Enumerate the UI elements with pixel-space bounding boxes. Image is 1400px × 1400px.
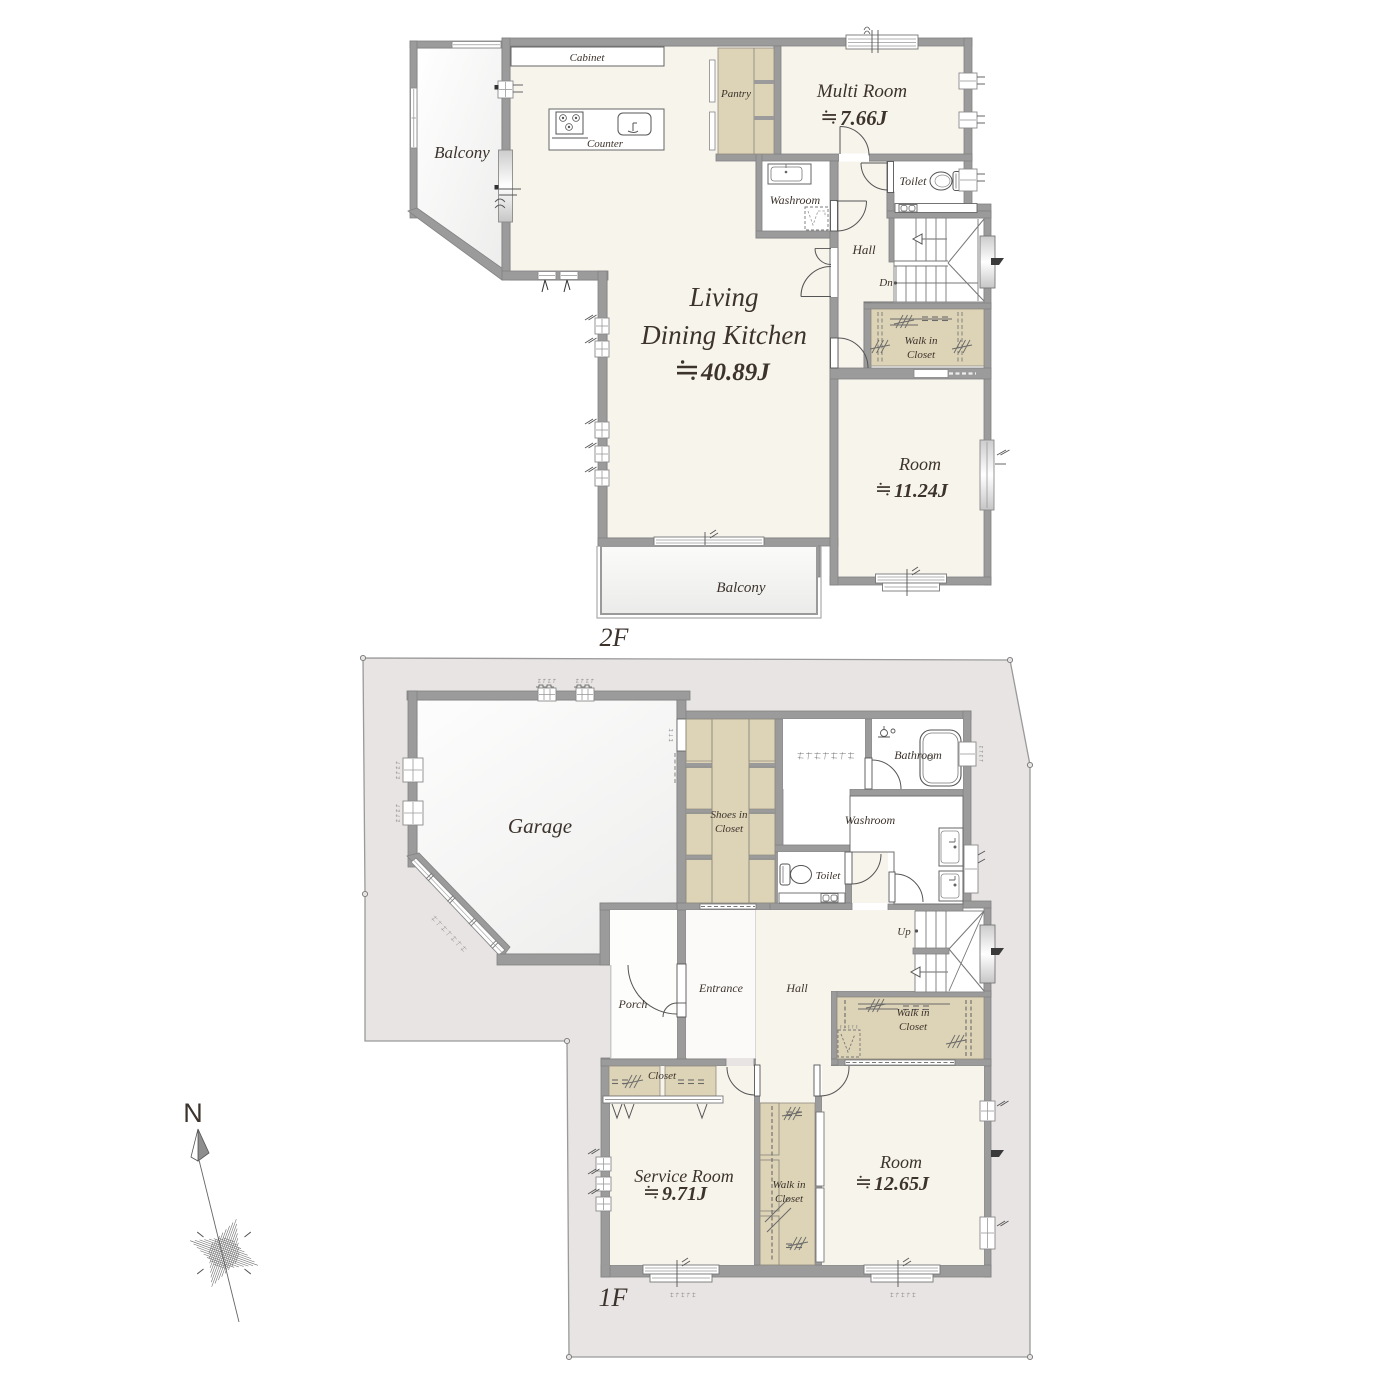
svg-text:Hall: Hall — [851, 242, 876, 257]
svg-text:Walk in: Walk in — [773, 1179, 806, 1191]
svg-text:Washroom: Washroom — [770, 193, 821, 207]
svg-text:Pantry: Pantry — [720, 88, 751, 100]
svg-text:Toilet: Toilet — [900, 174, 928, 188]
svg-text:Entrance: Entrance — [698, 981, 744, 995]
svg-text:Walk in: Walk in — [905, 335, 938, 347]
svg-text:Washroom: Washroom — [845, 813, 896, 827]
svg-text:Counter: Counter — [587, 138, 624, 150]
svg-text:Shoes in: Shoes in — [711, 809, 748, 821]
svg-text:Bathroom: Bathroom — [894, 748, 942, 762]
svg-text:Cabinet: Cabinet — [570, 52, 606, 64]
svg-text:Closet: Closet — [775, 1193, 804, 1205]
svg-text:Up: Up — [897, 926, 911, 938]
svg-text:Living: Living — [688, 282, 758, 312]
svg-text:12.65J: 12.65J — [874, 1173, 930, 1195]
svg-text:Walk in: Walk in — [897, 1007, 930, 1019]
svg-text:Closet: Closet — [715, 823, 744, 835]
svg-text:Dining Kitchen: Dining Kitchen — [640, 320, 807, 350]
svg-text:Multi Room: Multi Room — [816, 81, 907, 102]
svg-text:Closet: Closet — [899, 1021, 928, 1033]
svg-text:Balcony: Balcony — [716, 580, 765, 596]
svg-text:Balcony: Balcony — [434, 143, 490, 162]
svg-text:Toilet: Toilet — [816, 870, 842, 882]
svg-text:Hall: Hall — [785, 981, 808, 995]
svg-text:Room: Room — [879, 1152, 922, 1172]
svg-text:40.89J: 40.89J — [700, 359, 771, 386]
svg-text:2F: 2F — [600, 623, 630, 652]
svg-text:Closet: Closet — [907, 349, 936, 361]
svg-text:11.24J: 11.24J — [894, 480, 949, 502]
svg-text:N: N — [183, 1098, 203, 1128]
svg-text:Porch: Porch — [618, 997, 648, 1011]
svg-text:9.71J: 9.71J — [662, 1183, 708, 1205]
svg-text:1F: 1F — [599, 1283, 629, 1312]
svg-text:7.66J: 7.66J — [840, 106, 889, 130]
svg-text:Garage: Garage — [508, 814, 572, 838]
svg-text:Room: Room — [898, 454, 941, 474]
svg-text:Dn: Dn — [878, 277, 893, 289]
svg-text:Closet: Closet — [648, 1070, 677, 1082]
